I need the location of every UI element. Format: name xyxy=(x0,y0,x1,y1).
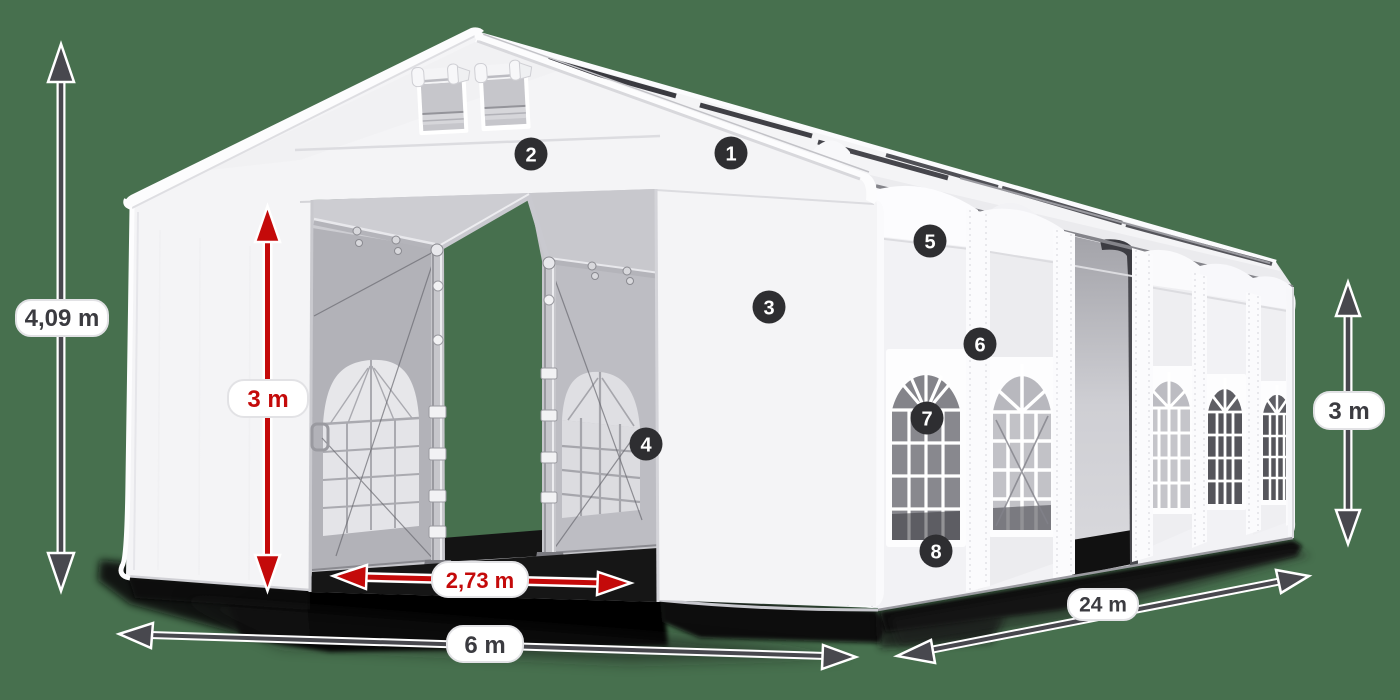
svg-text:3 m: 3 m xyxy=(247,386,288,413)
svg-text:2,73 m: 2,73 m xyxy=(446,568,515,593)
svg-text:4: 4 xyxy=(640,435,652,457)
svg-text:5: 5 xyxy=(924,232,935,254)
svg-text:6: 6 xyxy=(974,335,985,357)
svg-text:3: 3 xyxy=(763,298,774,320)
svg-text:8: 8 xyxy=(930,542,941,564)
svg-text:4,09 m: 4,09 m xyxy=(25,305,100,332)
svg-text:7: 7 xyxy=(921,409,932,431)
svg-text:24 m: 24 m xyxy=(1079,594,1127,617)
svg-text:3 m: 3 m xyxy=(1328,398,1369,425)
svg-text:6 m: 6 m xyxy=(464,632,505,659)
svg-text:1: 1 xyxy=(725,144,736,166)
svg-text:2: 2 xyxy=(525,145,536,167)
